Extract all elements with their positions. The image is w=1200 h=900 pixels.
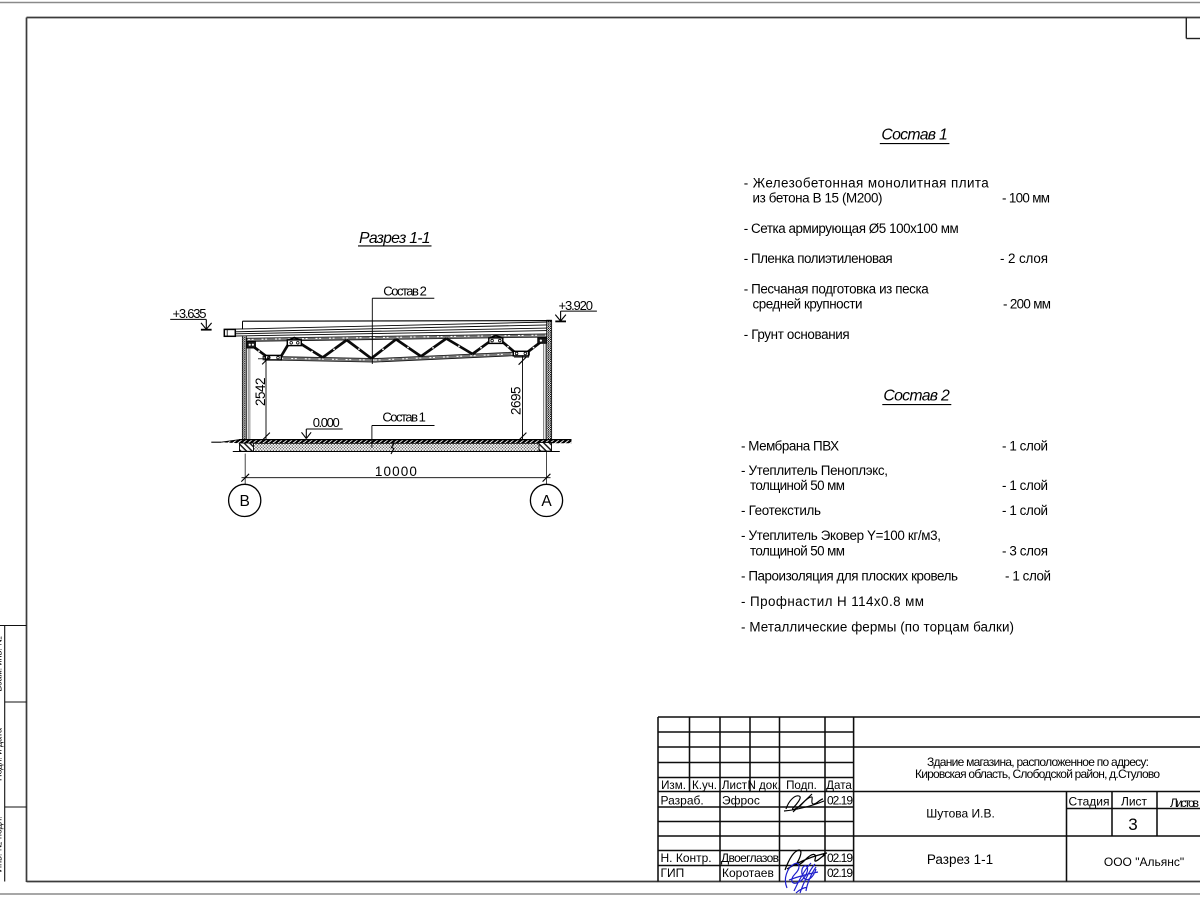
svg-text:толщиной 50 мм: толщиной 50 мм bbox=[750, 544, 845, 559]
svg-text:Двоеглазов: Двоеглазов bbox=[721, 851, 779, 865]
svg-text:02.19: 02.19 bbox=[827, 851, 853, 865]
svg-text:- Геотекстиль: - Геотекстиль bbox=[741, 503, 821, 518]
svg-text:2542: 2542 bbox=[253, 377, 268, 406]
svg-text:+3.635: +3.635 bbox=[173, 306, 207, 321]
svg-text:- Песчаная подготовка из песка: - Песчаная подготовка из песка bbox=[744, 282, 930, 297]
svg-text:толщиной 50 мм: толщиной 50 мм bbox=[750, 478, 845, 493]
svg-text:Дата: Дата bbox=[826, 779, 852, 792]
svg-text:Кировская область, Слободской: Кировская область, Слободской район, д.С… bbox=[915, 767, 1160, 781]
svg-text:Н. Контр.: Н. Контр. bbox=[661, 851, 712, 865]
svg-text:02.19: 02.19 bbox=[827, 794, 853, 808]
svg-text:К.уч.: К.уч. bbox=[692, 779, 717, 792]
svg-text:0.000: 0.000 bbox=[313, 415, 340, 430]
svg-text:- 1 слой: - 1 слой bbox=[1002, 478, 1048, 493]
svg-text:Состав 1: Состав 1 bbox=[382, 409, 426, 424]
svg-text:- Утеплитель Эковер Y=100 кг/м: - Утеплитель Эковер Y=100 кг/м3, bbox=[741, 528, 941, 543]
svg-text:- Пленка полиэтиленовая: - Пленка полиэтиленовая bbox=[744, 251, 893, 266]
svg-text:02.19: 02.19 bbox=[827, 866, 853, 880]
svg-text:Изм.: Изм. bbox=[661, 779, 686, 792]
svg-text:- Утеплитель Пеноплэкс,: - Утеплитель Пеноплэкс, bbox=[741, 463, 888, 478]
svg-text:Состав 1: Состав 1 bbox=[881, 127, 948, 144]
svg-text:- Грунт основания: - Грунт основания bbox=[744, 327, 850, 342]
svg-text:ГИП: ГИП bbox=[661, 866, 685, 880]
svg-text:Листов: Листов bbox=[1170, 796, 1199, 810]
svg-text:средней крупности: средней крупности bbox=[753, 297, 863, 312]
svg-text:N док.: N док. bbox=[747, 779, 780, 792]
svg-text:- 200 мм: - 200 мм bbox=[1003, 297, 1051, 312]
svg-text:- Металлические фермы (по торц: - Металлические фермы (по торцам балки) bbox=[741, 620, 1014, 635]
svg-text:- Пароизоляция для плоских кро: - Пароизоляция для плоских кровель bbox=[741, 569, 958, 584]
svg-text:А: А bbox=[541, 493, 552, 510]
svg-text:- Сетка армирующая Ø5 100х100: - Сетка армирующая Ø5 100х100 мм bbox=[744, 221, 959, 236]
svg-text:Эфрос: Эфрос bbox=[722, 794, 760, 808]
svg-text:Стадия: Стадия bbox=[1069, 795, 1110, 809]
svg-text:- 1 слой: - 1 слой bbox=[1005, 569, 1051, 584]
svg-text:2695: 2695 bbox=[508, 386, 523, 415]
svg-text:ООО "Альянс": ООО "Альянс" bbox=[1104, 855, 1184, 869]
svg-text:из бетона В 15 (М200): из бетона В 15 (М200) bbox=[753, 191, 883, 206]
svg-text:В: В bbox=[240, 493, 250, 510]
svg-text:Инв. № подл.: Инв. № подл. bbox=[0, 816, 4, 872]
svg-text:Шутова И.В.: Шутова И.В. bbox=[926, 807, 995, 821]
svg-text:+3.920: +3.920 bbox=[559, 298, 594, 313]
svg-text:Коротаев: Коротаев bbox=[722, 866, 774, 880]
svg-text:Состав 2: Состав 2 bbox=[383, 283, 427, 298]
svg-text:Лист: Лист bbox=[722, 779, 748, 792]
svg-text:- Железобетонная монолитная п: - Железобетонная монолитная плита bbox=[744, 176, 990, 191]
svg-text:- 100 мм: - 100 мм bbox=[1002, 191, 1050, 206]
svg-text:Взам. инв. №: Взам. инв. № bbox=[0, 636, 4, 692]
svg-text:- 1 слой: - 1 слой bbox=[1002, 439, 1048, 454]
svg-text:Состав 2: Состав 2 bbox=[883, 388, 950, 405]
svg-text:- 1 слой: - 1 слой bbox=[1002, 503, 1048, 518]
svg-text:- Мембрана ПВХ: - Мембрана ПВХ bbox=[741, 439, 839, 454]
svg-text:3: 3 bbox=[1128, 815, 1137, 834]
svg-text:Лист: Лист bbox=[1121, 795, 1148, 809]
svg-text:Подп.: Подп. bbox=[786, 779, 817, 792]
svg-text:Разраб.: Разраб. bbox=[661, 794, 704, 808]
svg-text:- 3 слоя: - 3 слоя bbox=[1002, 544, 1048, 559]
svg-text:10000: 10000 bbox=[375, 464, 417, 479]
svg-text:- 2 слоя: - 2 слоя bbox=[1000, 251, 1048, 266]
svg-text:- Профнастил Н 114х0.8 мм: - Профнастил Н 114х0.8 мм bbox=[741, 594, 924, 609]
svg-text:Разрез 1-1: Разрез 1-1 bbox=[359, 230, 431, 247]
svg-text:Подп. и дата: Подп. и дата bbox=[0, 728, 4, 781]
svg-text:Разрез 1-1: Разрез 1-1 bbox=[927, 852, 993, 867]
